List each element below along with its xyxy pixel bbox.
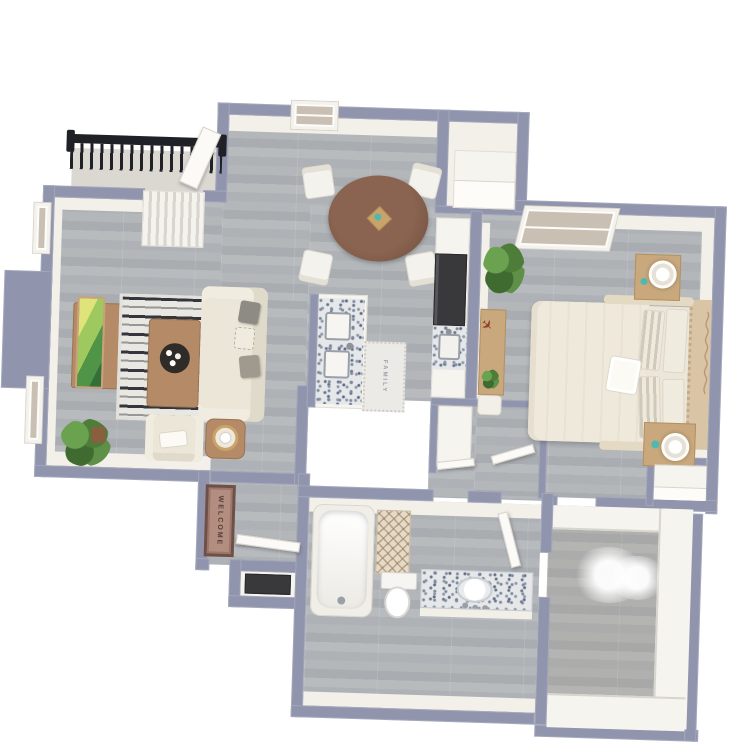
dining-window — [291, 101, 338, 130]
tv-screen — [75, 296, 106, 389]
sofa-pillow-patterned — [233, 326, 255, 350]
window-pane — [525, 211, 613, 229]
window-pane — [521, 228, 609, 246]
window-pane — [30, 382, 38, 438]
living-window-upper — [33, 203, 51, 253]
sofa-pillow — [238, 300, 261, 325]
entry-closet-dark-mat — [244, 574, 291, 595]
desk-stool — [477, 395, 502, 416]
closet-shelf-bottom — [546, 693, 685, 731]
reach-in-closet-shelf — [654, 486, 706, 501]
floor-plan: FAMILY WELCOME ✈ — [0, 0, 750, 750]
linen-closet — [437, 406, 473, 467]
island-sink-basin — [324, 312, 351, 341]
exterior-bump — [1, 270, 53, 389]
window-pane — [296, 116, 332, 125]
armchair-pillow — [159, 430, 189, 449]
dining-chair — [298, 249, 334, 286]
kitchen-runner-text: FAMILY — [381, 360, 388, 394]
sofa-pillow — [239, 355, 261, 379]
welcome-doormat: WELCOME — [204, 484, 236, 557]
stacked-appliance — [453, 150, 517, 210]
wall-bathroom-top-b — [467, 490, 501, 503]
kitchen-wall-sink — [438, 333, 461, 360]
window-pane — [38, 208, 45, 248]
dining-chair — [301, 164, 335, 200]
welcome-doormat-text: WELCOME — [215, 495, 224, 546]
window-pane — [297, 106, 333, 115]
sliding-door-blinds — [141, 190, 205, 248]
bed-pillow-cream — [663, 308, 689, 373]
wall-entry-bottom-a — [195, 558, 209, 570]
wall-closet-left — [540, 493, 554, 553]
bathtub-basin — [316, 510, 369, 610]
refrigerator — [433, 253, 467, 326]
bed-accent-pillow — [605, 355, 643, 396]
shower-curtain — [375, 510, 411, 575]
balcony-railing-post-left — [66, 130, 75, 152]
plant-pot — [91, 427, 105, 443]
floor-plan-canvas: FAMILY WELCOME ✈ — [0, 0, 750, 750]
island-sink-basin — [323, 350, 350, 379]
wall-living-top-b — [203, 190, 227, 203]
kitchen-runner-rug: FAMILY — [362, 341, 406, 412]
living-window-lower — [25, 377, 43, 443]
bedroom-window — [515, 206, 619, 251]
